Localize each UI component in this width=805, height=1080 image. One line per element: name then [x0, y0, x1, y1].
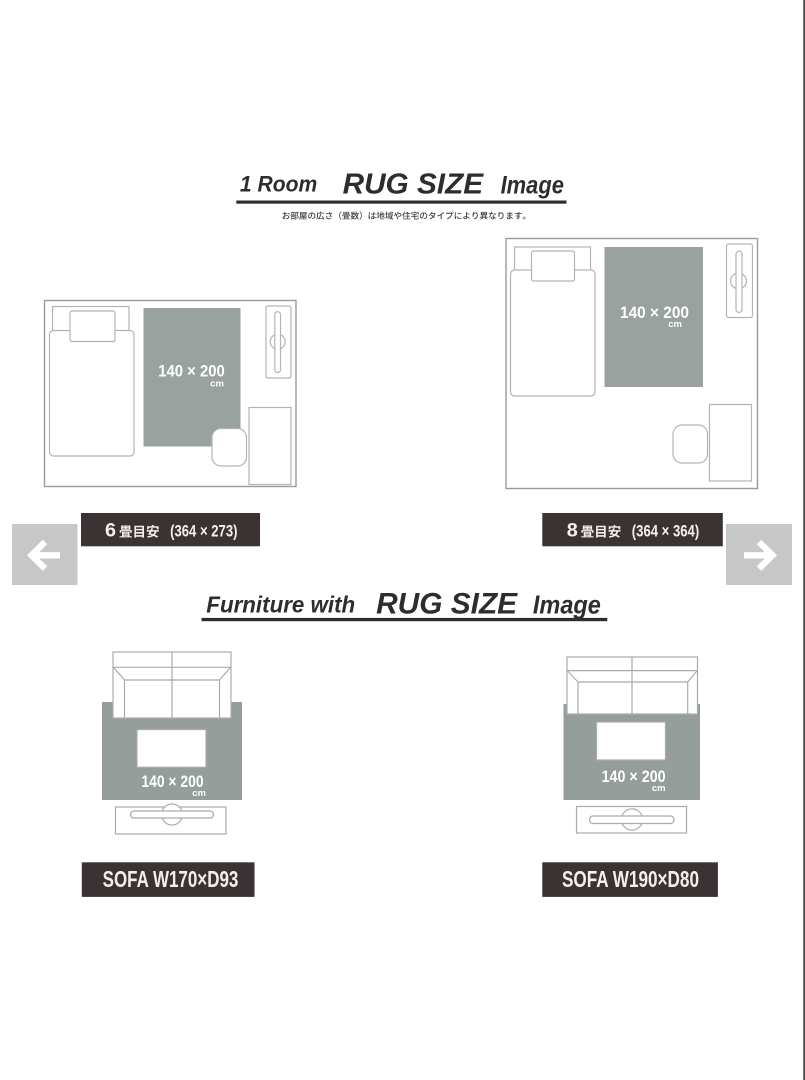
svg-text:6: 6 [105, 519, 116, 541]
svg-text:(364 × 364): (364 × 364) [632, 522, 699, 540]
svg-text:SOFA W190×D80: SOFA W190×D80 [562, 866, 699, 892]
svg-text:RUG SIZE: RUG SIZE [343, 169, 484, 201]
svg-text:Image: Image [501, 172, 564, 200]
svg-text:(364 × 273): (364 × 273) [170, 522, 237, 540]
svg-text:RUG SIZE: RUG SIZE [376, 588, 519, 620]
svg-text:Image: Image [533, 590, 601, 620]
svg-text:SOFA W170×D93: SOFA W170×D93 [103, 866, 239, 892]
svg-text:8: 8 [567, 519, 578, 541]
svg-text:cm: cm [668, 319, 682, 330]
svg-text:cm: cm [192, 788, 206, 799]
svg-text:1 Room: 1 Room [240, 172, 317, 197]
svg-text:cm: cm [210, 379, 224, 390]
svg-text:Furniture with: Furniture with [206, 592, 355, 618]
svg-text:cm: cm [652, 783, 666, 794]
